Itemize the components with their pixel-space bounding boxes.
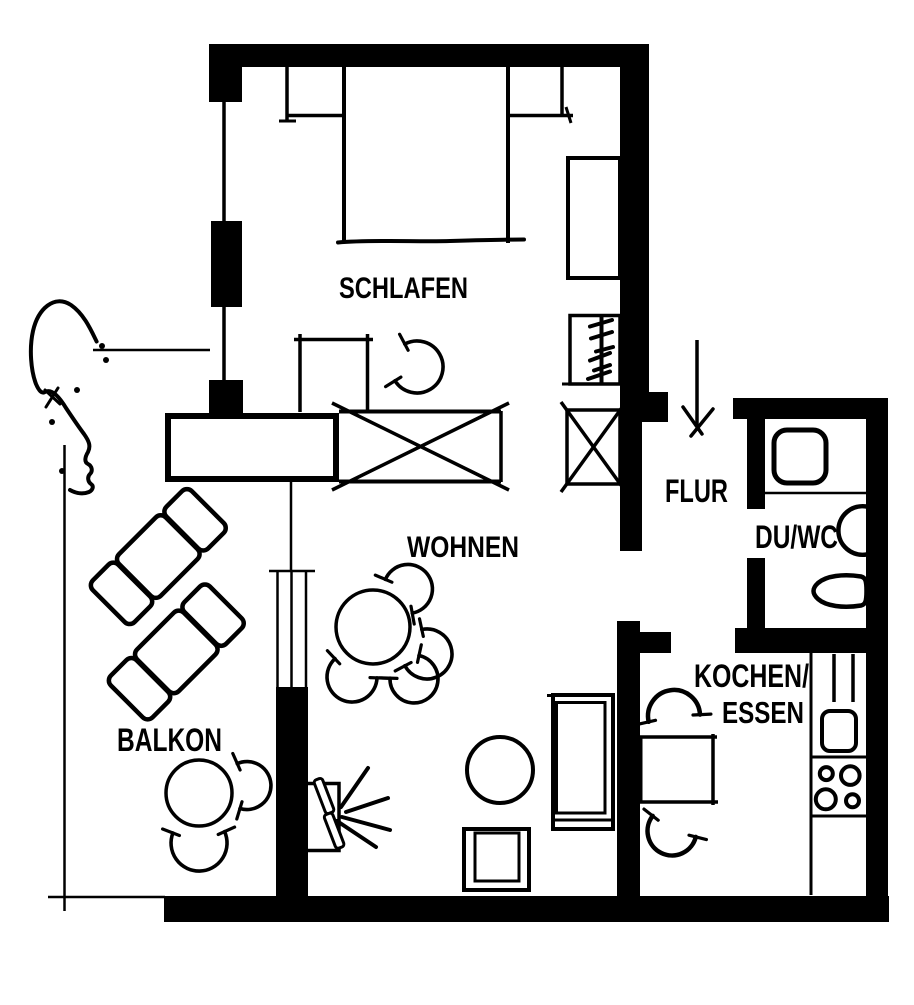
svg-text:BALKON: BALKON <box>117 722 222 758</box>
svg-text:WOHNEN: WOHNEN <box>407 531 519 564</box>
svg-text:SCHLAFEN: SCHLAFEN <box>339 272 468 305</box>
svg-text:KOCHEN/: KOCHEN/ <box>694 658 809 694</box>
svg-text:DU/WC: DU/WC <box>755 519 838 555</box>
svg-text:ESSEN: ESSEN <box>722 695 804 730</box>
svg-text:FLUR: FLUR <box>665 473 728 509</box>
